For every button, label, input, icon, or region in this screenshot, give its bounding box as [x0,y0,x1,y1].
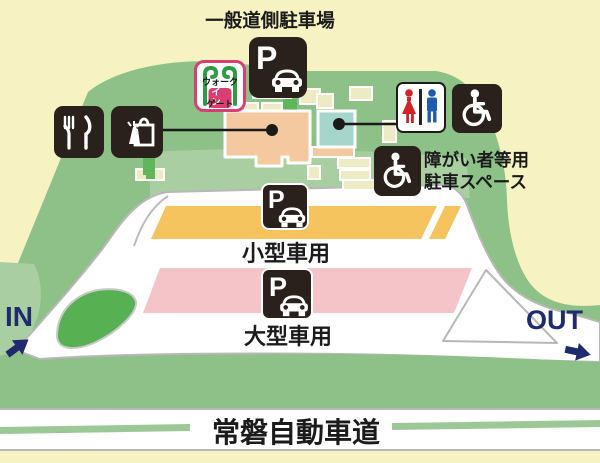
connector-dot-restroom [333,118,345,130]
walk-in-gate-icon: ウォーク イン ゲート [194,60,246,112]
female-figure [402,89,416,123]
wheelchair-icon [452,84,502,133]
connector-dot-shop [266,124,278,136]
in-arrow-icon [2,331,34,363]
fork-knife-icon [54,106,104,158]
rest-area-map: ウォーク イン ゲート P [0,0,600,463]
in-label: IN [5,301,33,333]
general-parking-icon: P [249,37,307,98]
disabled-parking-label-line2: 駐車スペース [424,172,529,194]
median-green-band [0,354,600,409]
car-icon [270,68,304,94]
small-car-parking-icon: P [261,183,309,230]
large-car-label: 大型車用 [244,319,332,351]
accessible-parking-icon [374,146,421,196]
main-building [225,111,310,166]
disabled-parking-label: 障がい者等用 駐車スペース [424,150,529,193]
large-car-parking-icon: P [261,268,313,320]
accessible-icon-top [452,84,502,133]
disabled-parking-label-line1: 障がい者等用 [424,150,529,172]
gate-word-3: ゲート [197,100,243,109]
out-arrow-icon [560,338,596,366]
restaurant-icon [54,106,104,158]
male-figure [427,89,437,122]
highway-name-label: 常磐自動車道 [212,411,380,451]
small-car-label: 小型車用 [242,236,330,268]
wheelchair-icon [374,146,421,196]
shopping-icon [111,106,163,158]
general-parking-label: 一般道側駐車場 [205,7,335,33]
male-female-restroom-icon [398,84,443,130]
car-icon [278,294,310,318]
gate-word-1: ウォーク [197,78,243,87]
car-icon [277,206,307,229]
shopping-bag-icon [111,106,163,158]
restroom-icon [396,82,446,133]
out-label: OUT [526,305,583,336]
